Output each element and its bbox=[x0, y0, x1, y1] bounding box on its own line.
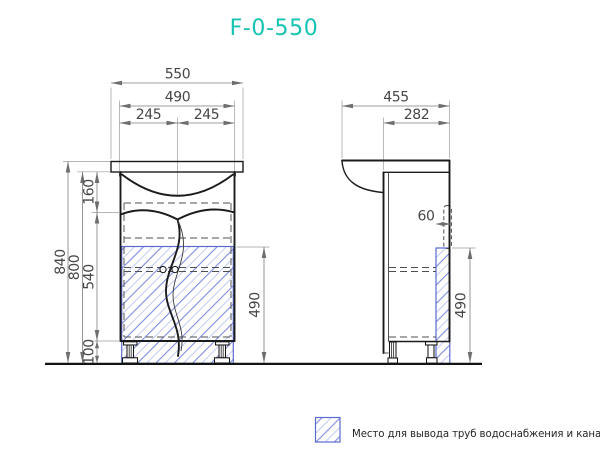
dim-front-pipe-zone-height: 490 bbox=[248, 292, 264, 318]
page-title: F-0-550 bbox=[230, 16, 319, 41]
door-knob-left bbox=[160, 266, 166, 272]
dim-front-overall-width: 550 bbox=[165, 67, 191, 83]
washbasin-top bbox=[111, 162, 243, 173]
dim-front-right-half: 245 bbox=[194, 107, 220, 123]
front-view bbox=[111, 162, 243, 364]
hatch-swatch-icon bbox=[316, 418, 341, 443]
dim-side-pipe-zone-depth: 60 bbox=[417, 209, 434, 225]
dim-side-pipe-zone-height: 490 bbox=[454, 293, 470, 319]
dim-front-door-height: 540 bbox=[82, 264, 98, 290]
leg-base bbox=[388, 358, 398, 363]
front-pipe-zone-hatch bbox=[122, 247, 234, 364]
drawing-sheet: F-0-550 bbox=[0, 0, 600, 462]
dim-front-leg-height: 100 bbox=[82, 339, 98, 365]
side-view bbox=[342, 161, 451, 364]
dim-side-overall-depth: 455 bbox=[383, 90, 409, 106]
leg-base bbox=[123, 358, 138, 363]
dim-front-apron-height: 160 bbox=[82, 179, 98, 205]
leg-stem bbox=[390, 342, 397, 358]
leg-stem bbox=[219, 345, 226, 358]
technical-drawing: F-0-550 bbox=[0, 0, 600, 462]
side-pipe-zone-hatch bbox=[436, 248, 450, 363]
leg-base bbox=[215, 358, 230, 363]
legend: Место для вывода труб водоснабжения и ка… bbox=[316, 418, 600, 443]
legend-label: Место для вывода труб водоснабжения и ка… bbox=[352, 429, 600, 440]
dim-side-cabinet-depth: 282 bbox=[404, 107, 430, 123]
basin-front-curve bbox=[342, 161, 384, 193]
leg-stem bbox=[428, 345, 434, 358]
dim-front-left-half: 245 bbox=[136, 107, 162, 123]
leg-base bbox=[427, 358, 438, 363]
leg-stem bbox=[127, 345, 134, 358]
door-top-curve bbox=[121, 209, 235, 219]
side-front-leg bbox=[388, 342, 398, 363]
side-back-leg bbox=[426, 342, 438, 363]
dimension-labels: 550 490 245 245 455 282 840 800 160 540 … bbox=[53, 67, 470, 365]
dim-front-cabinet-width: 490 bbox=[165, 90, 191, 106]
door-knob-right bbox=[172, 266, 178, 272]
